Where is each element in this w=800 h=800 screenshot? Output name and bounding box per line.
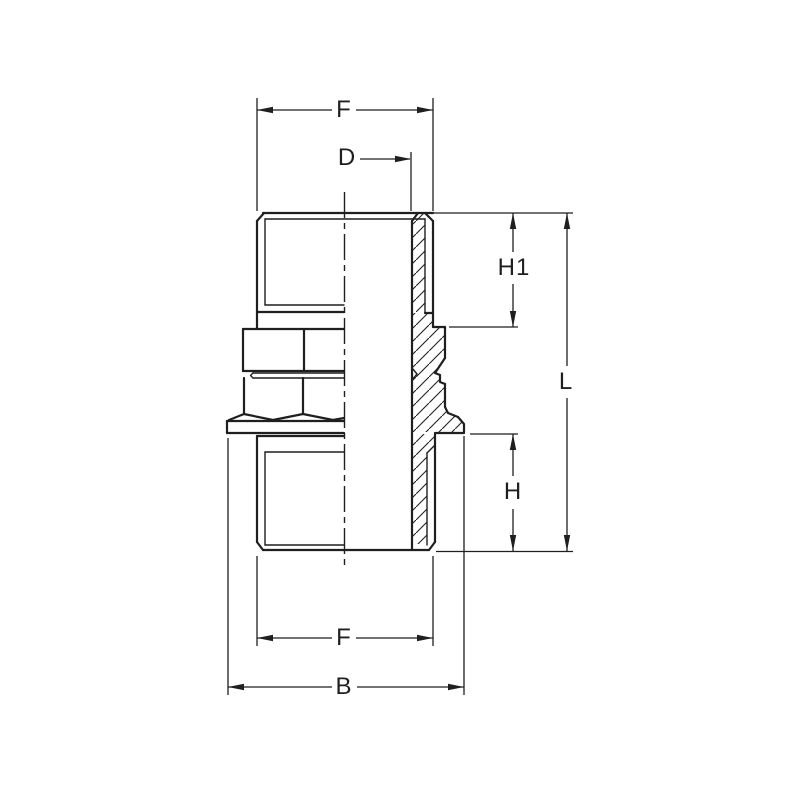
fitting-section-drawing xyxy=(0,0,800,800)
extension-lines xyxy=(228,98,573,695)
section-hatching xyxy=(412,214,464,544)
dimension-lines xyxy=(228,110,567,687)
dim-label-h1: H1 xyxy=(496,256,533,280)
dim-label-f-top: F xyxy=(334,98,354,122)
dim-label-h: H xyxy=(502,480,524,504)
drawing-canvas: F D H1 L H F B xyxy=(0,0,800,800)
dim-label-b: B xyxy=(333,675,354,699)
dim-label-f-bottom: F xyxy=(334,626,354,650)
dimension-arrowheads xyxy=(228,107,570,690)
dim-label-d: D xyxy=(336,146,358,170)
dim-label-l: L xyxy=(557,370,575,394)
thread-detail-lines xyxy=(251,219,436,545)
